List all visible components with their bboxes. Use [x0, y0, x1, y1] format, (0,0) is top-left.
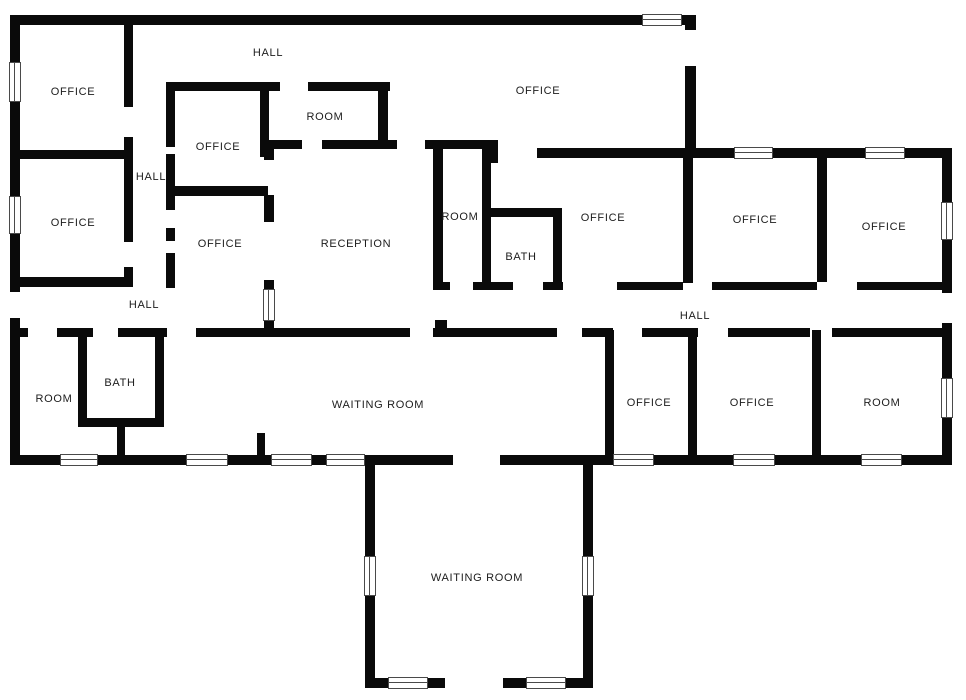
- room-label-office: OFFICE: [51, 86, 96, 98]
- wall-segment: [260, 82, 269, 140]
- wall-segment: [728, 328, 810, 337]
- window-symbol: [271, 454, 312, 466]
- wall-segment: [10, 277, 133, 287]
- wall-segment: [10, 15, 696, 25]
- window-symbol: [186, 454, 228, 466]
- window-symbol: [941, 378, 953, 418]
- wall-segment: [685, 66, 696, 158]
- wall-segment: [473, 282, 513, 290]
- floor-plan: HALLOFFICEOFFICEHALLOFFICEOFFICEROOMOFFI…: [0, 0, 966, 700]
- wall-segment: [10, 150, 132, 159]
- room-label-office: OFFICE: [198, 238, 243, 250]
- room-label-office: OFFICE: [51, 217, 96, 229]
- window-symbol: [582, 556, 594, 596]
- window-symbol: [9, 62, 21, 102]
- room-label-office: OFFICE: [581, 212, 626, 224]
- wall-segment: [166, 154, 175, 210]
- window-symbol: [733, 454, 775, 466]
- room-label-office: OFFICE: [730, 397, 775, 409]
- wall-segment: [812, 330, 821, 456]
- window-symbol: [941, 202, 953, 240]
- window-symbol: [60, 454, 98, 466]
- wall-segment: [378, 82, 388, 140]
- wall-segment: [196, 328, 410, 337]
- wall-segment: [688, 330, 697, 456]
- wall-segment: [543, 282, 563, 290]
- room-label-office: OFFICE: [733, 214, 778, 226]
- window-symbol: [326, 454, 365, 466]
- window-symbol: [642, 14, 682, 26]
- room-label-room: ROOM: [35, 393, 72, 405]
- wall-segment: [832, 328, 948, 337]
- wall-segment: [712, 282, 817, 290]
- wall-segment: [817, 158, 827, 282]
- window-symbol: [734, 147, 773, 159]
- window-symbol: [613, 454, 654, 466]
- wall-segment: [617, 282, 683, 290]
- room-label-waiting-room: WAITING ROOM: [332, 399, 424, 411]
- room-label-room: ROOM: [441, 211, 478, 223]
- wall-segment: [266, 140, 302, 149]
- wall-segment: [500, 455, 593, 465]
- wall-segment: [553, 208, 562, 290]
- wall-segment: [124, 158, 133, 242]
- room-label-hall: HALL: [129, 299, 159, 311]
- room-label-hall: HALL: [136, 171, 166, 183]
- room-label-hall: HALL: [680, 310, 710, 322]
- wall-segment: [124, 15, 133, 107]
- room-label-office: OFFICE: [196, 141, 241, 153]
- wall-segment: [166, 253, 175, 288]
- room-label-office: OFFICE: [627, 397, 672, 409]
- wall-segment: [166, 228, 175, 241]
- room-label-bath: BATH: [505, 251, 536, 263]
- wall-segment: [118, 328, 167, 337]
- wall-segment: [10, 318, 20, 465]
- wall-segment: [433, 328, 557, 337]
- wall-segment: [482, 208, 562, 217]
- window-symbol: [364, 556, 376, 596]
- wall-segment: [537, 148, 693, 158]
- wall-segment: [78, 418, 164, 427]
- wall-segment: [166, 186, 268, 196]
- wall-segment: [605, 330, 614, 456]
- room-label-office: OFFICE: [516, 85, 561, 97]
- wall-segment: [78, 337, 87, 427]
- room-label-room: ROOM: [306, 111, 343, 123]
- wall-segment: [322, 140, 397, 149]
- wall-segment: [257, 433, 265, 456]
- room-label-bath: BATH: [104, 377, 135, 389]
- wall-segment: [155, 337, 164, 427]
- wall-segment: [433, 282, 450, 290]
- wall-segment: [685, 148, 952, 158]
- room-label-office: OFFICE: [862, 221, 907, 233]
- window-symbol: [388, 677, 428, 689]
- wall-segment: [117, 427, 125, 456]
- wall-segment: [166, 82, 175, 147]
- room-label-hall: HALL: [253, 47, 283, 59]
- window-symbol: [526, 677, 566, 689]
- wall-segment: [365, 455, 453, 465]
- wall-segment: [264, 195, 274, 222]
- wall-segment: [57, 328, 93, 337]
- window-symbol: [861, 454, 902, 466]
- room-label-waiting-room: WAITING ROOM: [431, 572, 523, 584]
- wall-segment: [857, 282, 942, 290]
- wall-segment: [685, 15, 696, 30]
- window-symbol: [263, 289, 275, 321]
- wall-segment: [683, 148, 693, 283]
- wall-segment: [124, 137, 133, 158]
- window-symbol: [865, 147, 905, 159]
- window-symbol: [9, 196, 21, 234]
- room-label-room: ROOM: [863, 397, 900, 409]
- wall-segment: [10, 328, 28, 337]
- room-label-reception: RECEPTION: [321, 238, 391, 250]
